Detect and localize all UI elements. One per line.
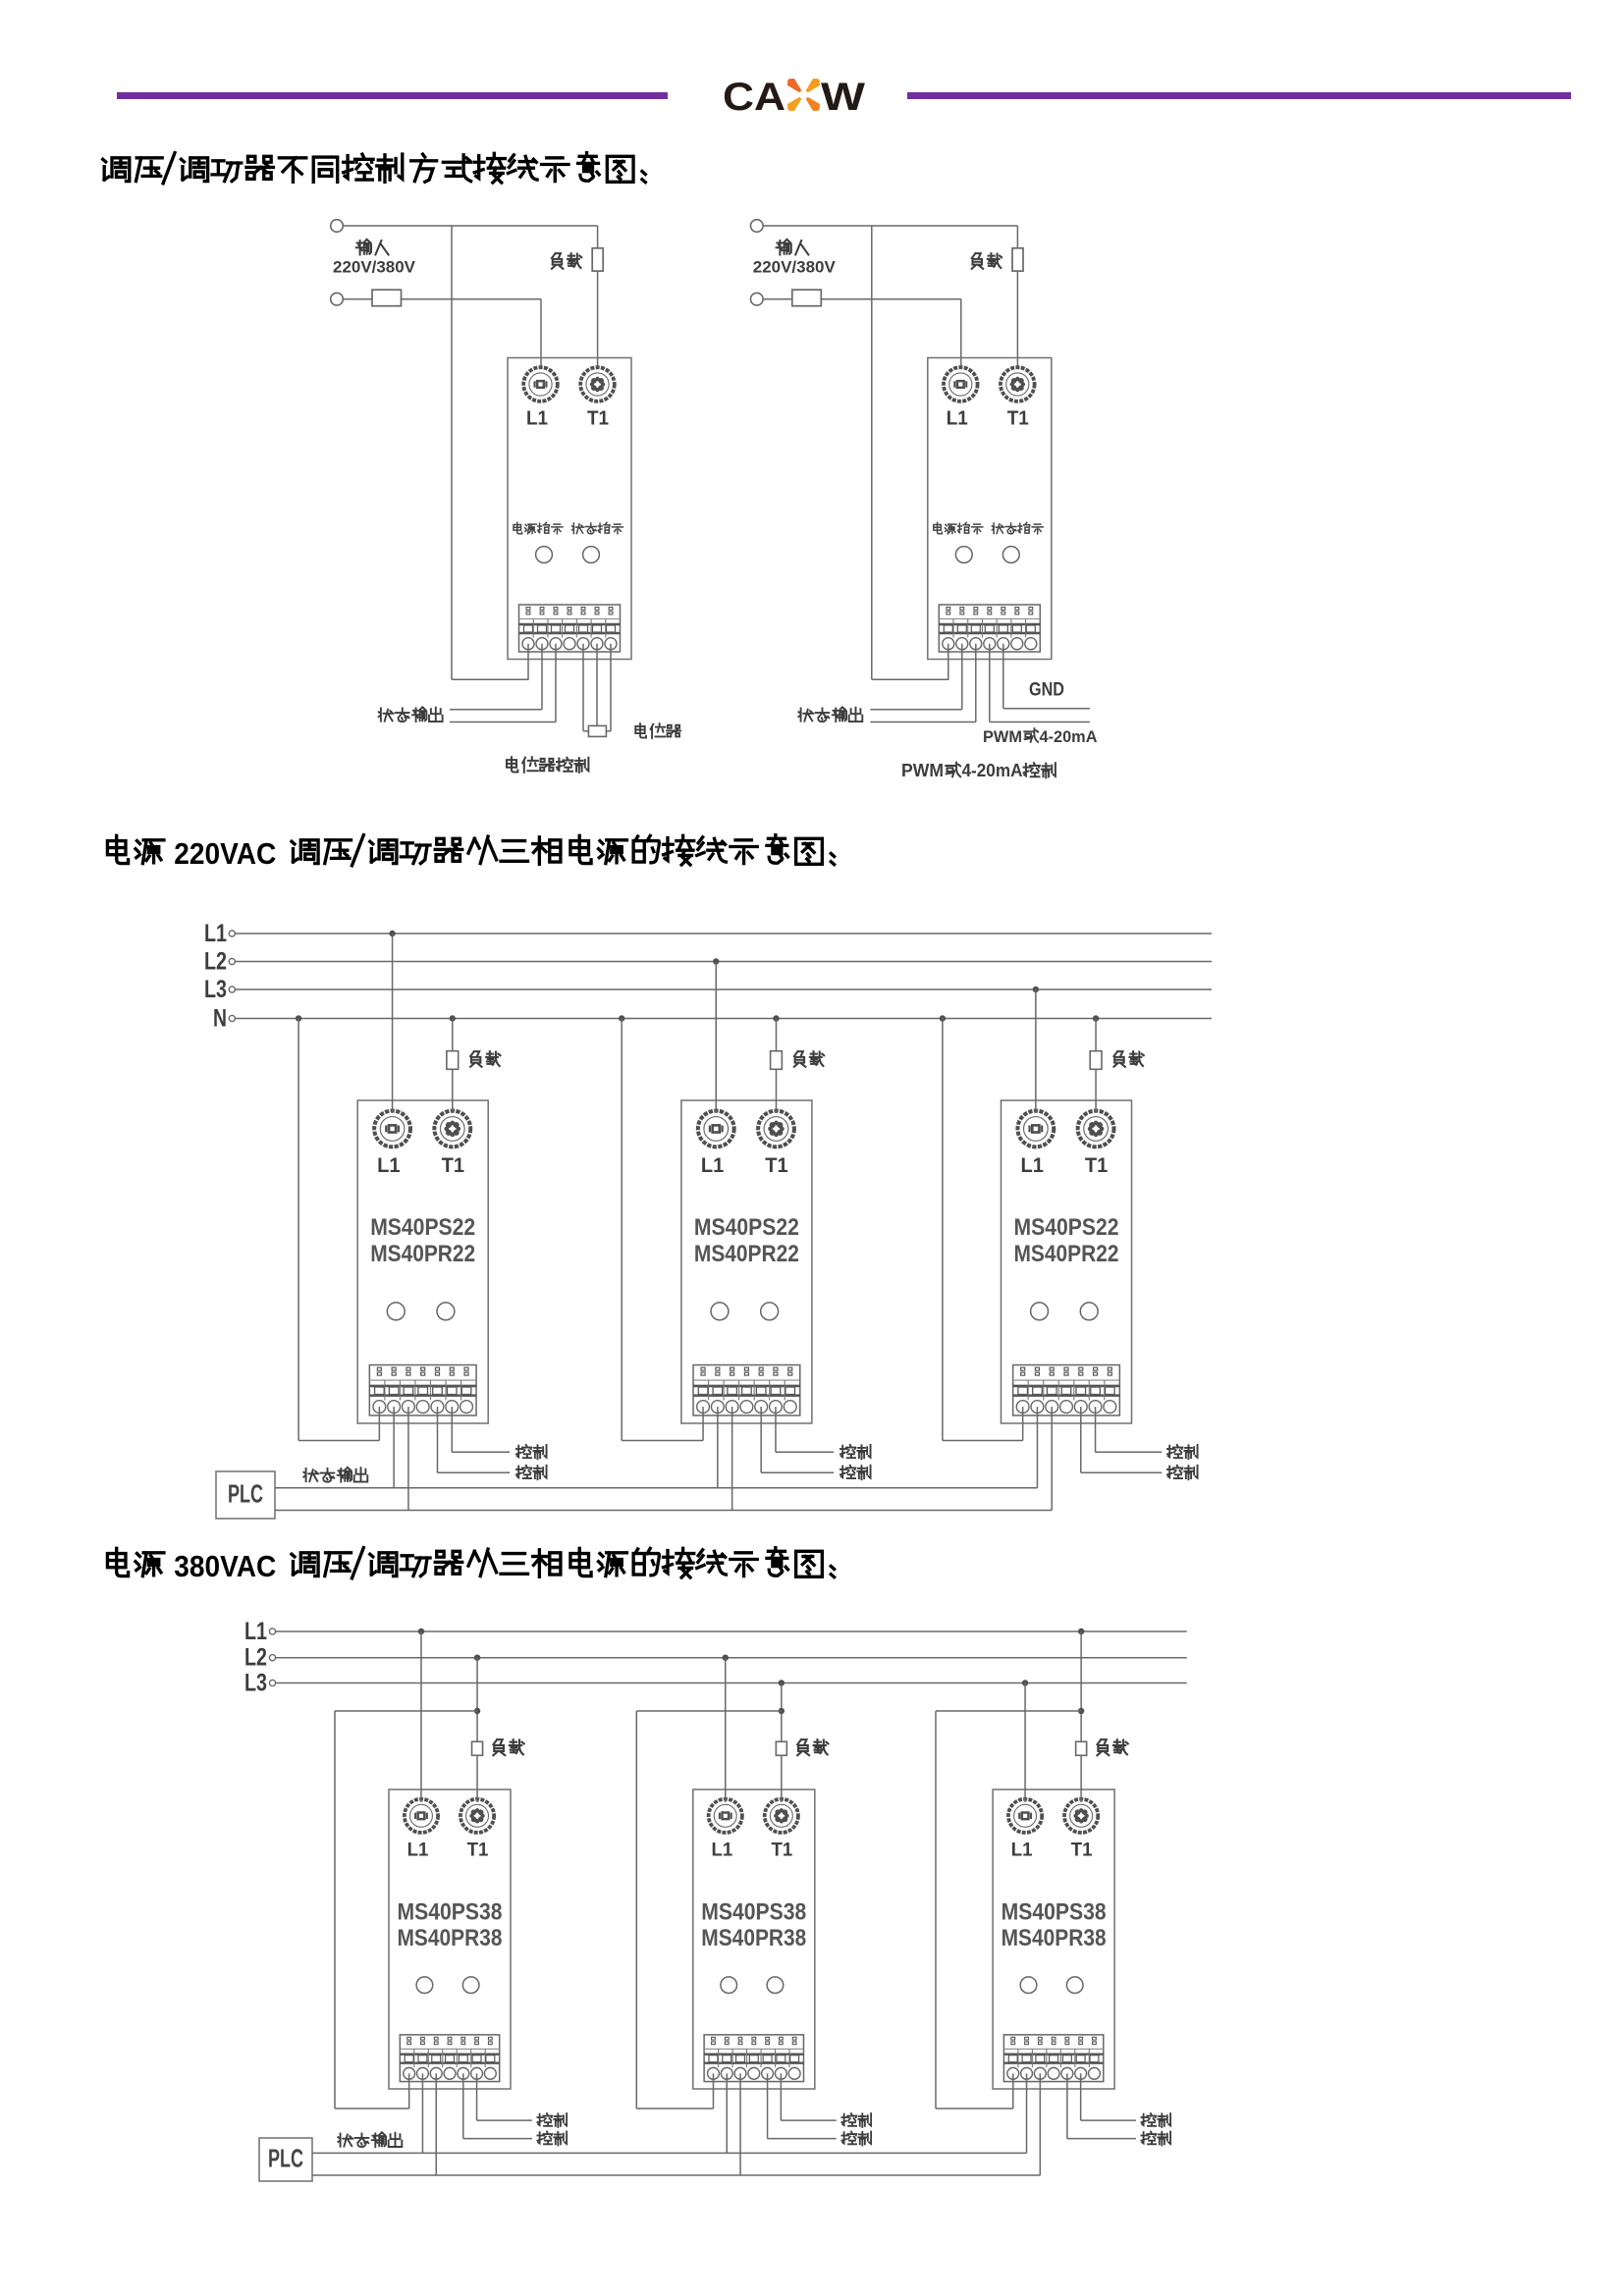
svg-text:MS40PR22: MS40PR22 xyxy=(370,1241,475,1267)
svg-text:MS40PS22: MS40PS22 xyxy=(370,1214,475,1241)
svg-text:PWM: PWM xyxy=(983,727,1022,746)
svg-text:L1: L1 xyxy=(947,408,968,430)
svg-text:220VAC: 220VAC xyxy=(174,836,276,871)
svg-text:L1: L1 xyxy=(1011,1840,1033,1861)
svg-text:L1: L1 xyxy=(244,1618,267,1645)
svg-text:MS40PS22: MS40PS22 xyxy=(1014,1214,1119,1241)
svg-text:MS40PS38: MS40PS38 xyxy=(398,1899,503,1926)
svg-text:MS40PS38: MS40PS38 xyxy=(1001,1899,1107,1926)
svg-text:T1: T1 xyxy=(1007,408,1029,430)
svg-text:T1: T1 xyxy=(442,1153,465,1177)
svg-text:T1: T1 xyxy=(587,408,609,430)
svg-text:MS40PR22: MS40PR22 xyxy=(1014,1241,1119,1267)
svg-text:220V/380V: 220V/380V xyxy=(333,258,416,277)
svg-text:L1: L1 xyxy=(204,920,227,947)
svg-text:PWM: PWM xyxy=(901,761,944,780)
svg-text:L1: L1 xyxy=(377,1153,401,1177)
svg-text:380VAC: 380VAC xyxy=(174,1549,276,1583)
svg-text:T1: T1 xyxy=(467,1840,489,1861)
svg-text:CA: CA xyxy=(723,76,785,119)
svg-text:W: W xyxy=(821,76,865,119)
svg-text:MS40PR38: MS40PR38 xyxy=(701,1925,806,1951)
svg-text:L1: L1 xyxy=(1020,1153,1044,1177)
svg-text:L3: L3 xyxy=(244,1670,267,1697)
svg-text:4-20mA: 4-20mA xyxy=(1040,727,1098,746)
svg-text:MS40PS38: MS40PS38 xyxy=(701,1899,806,1926)
svg-text:T1: T1 xyxy=(765,1153,788,1177)
svg-text:T1: T1 xyxy=(1071,1840,1093,1861)
svg-text:L1: L1 xyxy=(711,1840,732,1861)
svg-text:L1: L1 xyxy=(701,1153,725,1177)
svg-text:PLC: PLC xyxy=(268,2144,303,2173)
svg-text:MS40PS22: MS40PS22 xyxy=(694,1214,799,1241)
svg-text:GND: GND xyxy=(1029,680,1064,701)
svg-text:MS40PR38: MS40PR38 xyxy=(1001,1925,1107,1951)
svg-text:4-20mA: 4-20mA xyxy=(962,761,1023,780)
svg-text:L2: L2 xyxy=(244,1644,267,1672)
svg-text:L3: L3 xyxy=(204,976,227,1003)
svg-text:MS40PR22: MS40PR22 xyxy=(694,1241,799,1267)
svg-text:T1: T1 xyxy=(771,1840,792,1861)
svg-text:T1: T1 xyxy=(1085,1153,1109,1177)
svg-text:L1: L1 xyxy=(407,1840,429,1861)
svg-text:L1: L1 xyxy=(526,408,548,430)
svg-text:L2: L2 xyxy=(204,948,227,976)
svg-text:PLC: PLC xyxy=(228,1479,263,1509)
svg-text:220V/380V: 220V/380V xyxy=(753,258,837,277)
svg-text:N: N xyxy=(213,1005,227,1033)
svg-text:MS40PR38: MS40PR38 xyxy=(398,1925,503,1951)
